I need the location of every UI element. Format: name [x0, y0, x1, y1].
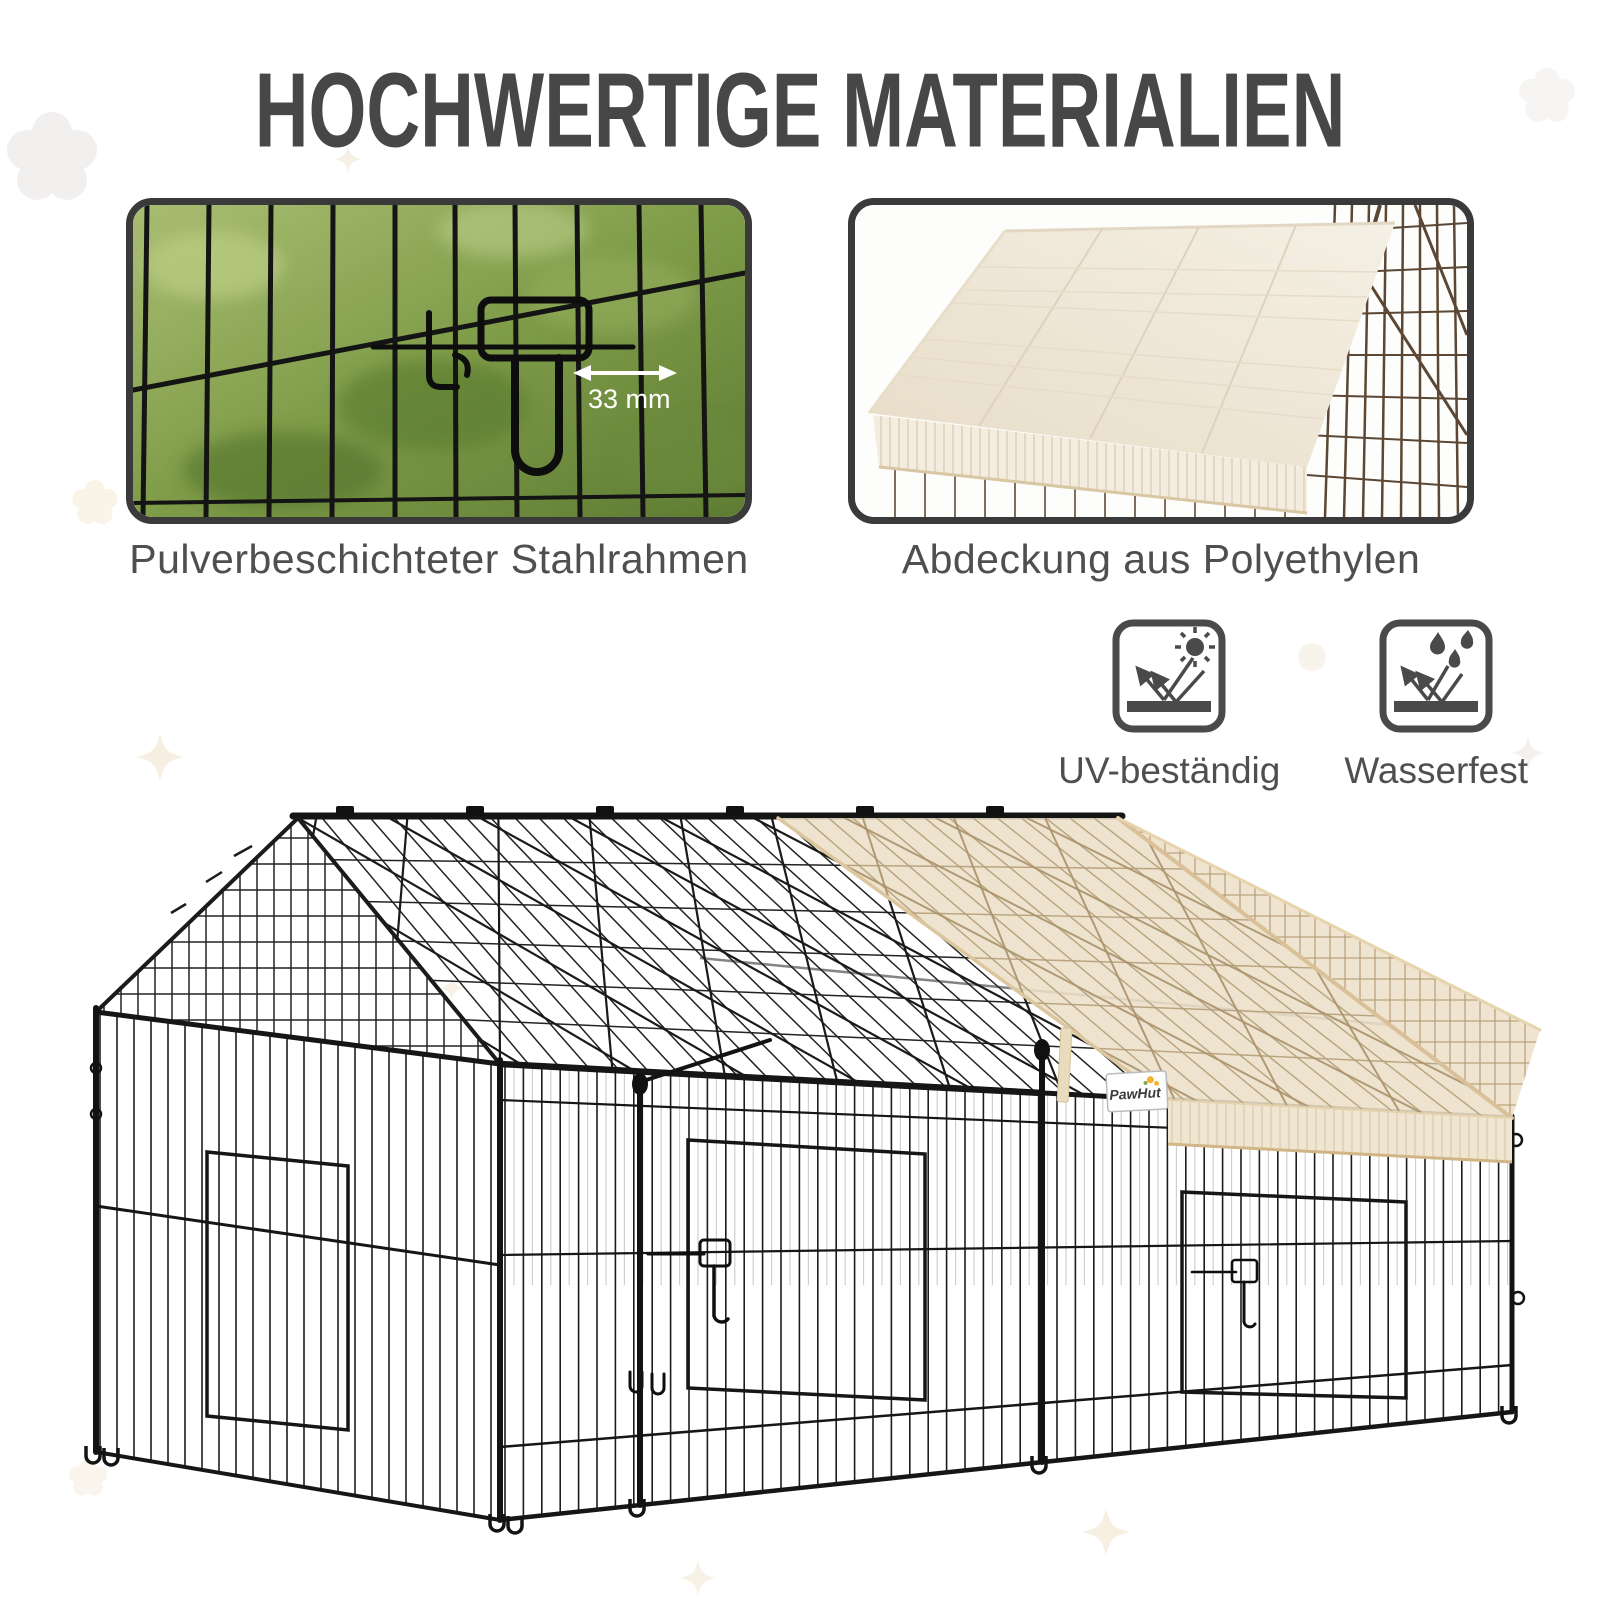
sun-reflection-icon: [1109, 616, 1229, 736]
dimension-label: 33 mm: [588, 384, 671, 414]
gable-frame: [96, 818, 500, 1064]
dimension-annotation: 33 mm: [573, 365, 677, 414]
water-drops-glyph: [1430, 630, 1473, 668]
door-latches: [630, 1240, 1257, 1394]
feature-photos-row: 33 mm Pulverbeschichteter Stahlrahmen: [0, 198, 1600, 583]
photo-caption-cover: Abdeckung aus Polyethylen: [848, 536, 1474, 583]
hinge-disc: [1034, 1039, 1050, 1061]
feature-photo-cover: [848, 198, 1474, 524]
product-image-cage: PawHut: [0, 778, 1600, 1600]
pawhut-logo-tag: PawHut: [1106, 1071, 1168, 1112]
water-drops-reflection-icon: [1376, 616, 1496, 736]
property-badges: UV-beständig: [1058, 616, 1528, 792]
brand-name: PawHut: [1109, 1084, 1162, 1103]
badge-waterproof: Wasserfest: [1344, 616, 1528, 792]
left-door: [207, 1152, 348, 1430]
badge-uv-resistant: UV-beständig: [1058, 616, 1280, 792]
left-wall-mesh: [100, 1004, 491, 1530]
photo-caption-steel-frame: Pulverbeschichteter Stahlrahmen: [126, 536, 752, 583]
sun-glyph: [1175, 627, 1215, 667]
front-door-right: [1182, 1192, 1406, 1398]
feature-cover: Abdeckung aus Polyethylen: [848, 198, 1474, 583]
feature-steel-frame: 33 mm Pulverbeschichteter Stahlrahmen: [126, 198, 752, 583]
cover-photo: [855, 205, 1467, 517]
feature-photo-steel-frame: 33 mm: [126, 198, 752, 524]
left-gable-mesh: [92, 812, 506, 1070]
cover-tie-strap: [1057, 1028, 1072, 1102]
sparkle-decoration-icon: [136, 733, 184, 781]
page-title: HOCHWERTIGE MATERIALIEN: [0, 52, 1600, 169]
front-door-left: [688, 1140, 925, 1400]
hinge-disc: [632, 1073, 648, 1095]
product-infographic: HOCHWERTIGE MATERIALIEN: [0, 0, 1600, 1600]
steel-frame-photo: 33 mm: [133, 205, 745, 517]
